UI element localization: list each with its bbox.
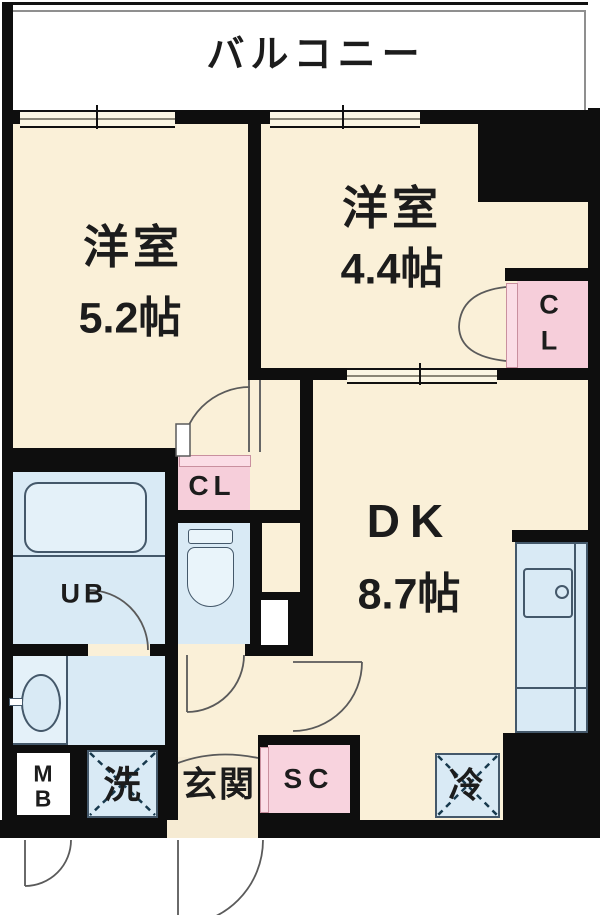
wall-kitchen-top (512, 530, 600, 542)
basin-faucet (9, 698, 23, 706)
dk-area: 8.7帖 (358, 574, 461, 617)
western2-area: 4.4帖 (341, 249, 444, 292)
toilet-bowl (187, 547, 234, 607)
wall-column-left (165, 448, 178, 823)
entrance-sill (167, 820, 258, 838)
western1-name: 洋室 (83, 224, 183, 270)
wall-dk-top-right (497, 368, 588, 380)
wall-dk-top-left (248, 368, 347, 380)
bathtub (24, 482, 147, 553)
ub-divider-line (13, 555, 165, 557)
dk-name: DK (367, 498, 453, 544)
closet-right-door (506, 283, 518, 368)
wall-hall-dk (300, 380, 313, 592)
kitchen-divider-line (515, 687, 588, 689)
wall-right (588, 108, 600, 822)
entrance-label: 玄関 (182, 768, 256, 803)
basin-sink (21, 674, 61, 732)
window-western2-dk (347, 368, 497, 384)
kitchen-counter-lip (574, 544, 576, 731)
closet-right-label-c: C (539, 292, 559, 319)
wall-ub-wash-left (2, 644, 88, 656)
refrigerator-label: 冷 (448, 769, 483, 804)
floor-plan: バルコニー 洋室 5.2帖 洋室 4.4帖 DK 8.7帖 UB CL C L … (0, 0, 600, 915)
wall-left (2, 2, 13, 838)
washer-label: 洗 (104, 767, 141, 804)
toilet-tank (188, 529, 233, 544)
wall-toilet-right (250, 518, 262, 592)
wall-block-topright (478, 110, 588, 202)
wall-western1-bottom (2, 448, 165, 472)
doorframe-western1 (248, 380, 261, 452)
niche-void (261, 600, 288, 645)
meter-box-label-m: M (33, 763, 52, 786)
western1-area: 5.2帖 (79, 298, 182, 341)
balcony-label: バルコニー (206, 36, 425, 74)
western2-name: 洋室 (342, 185, 442, 231)
window-western1 (20, 110, 175, 128)
closet-right-label-l: L (541, 328, 558, 355)
closet-hall-label: CL (188, 472, 235, 500)
unit-bath-label: UB (61, 581, 108, 608)
shoe-closet-label: SC (284, 765, 335, 793)
wall-room-divider (248, 122, 261, 380)
wall-block-bottomright (503, 733, 600, 838)
wall-toilet-top (165, 510, 313, 523)
kitchen-faucet (555, 585, 569, 599)
meter-box-label-b: B (35, 788, 52, 811)
window-western2 (270, 110, 420, 128)
closet-hall-door (179, 455, 251, 467)
wall-top-stub (2, 110, 20, 124)
wall-ub-wash-right (150, 644, 178, 656)
wall-closet-right-top (505, 268, 588, 281)
shoe-closet-door (260, 747, 269, 813)
